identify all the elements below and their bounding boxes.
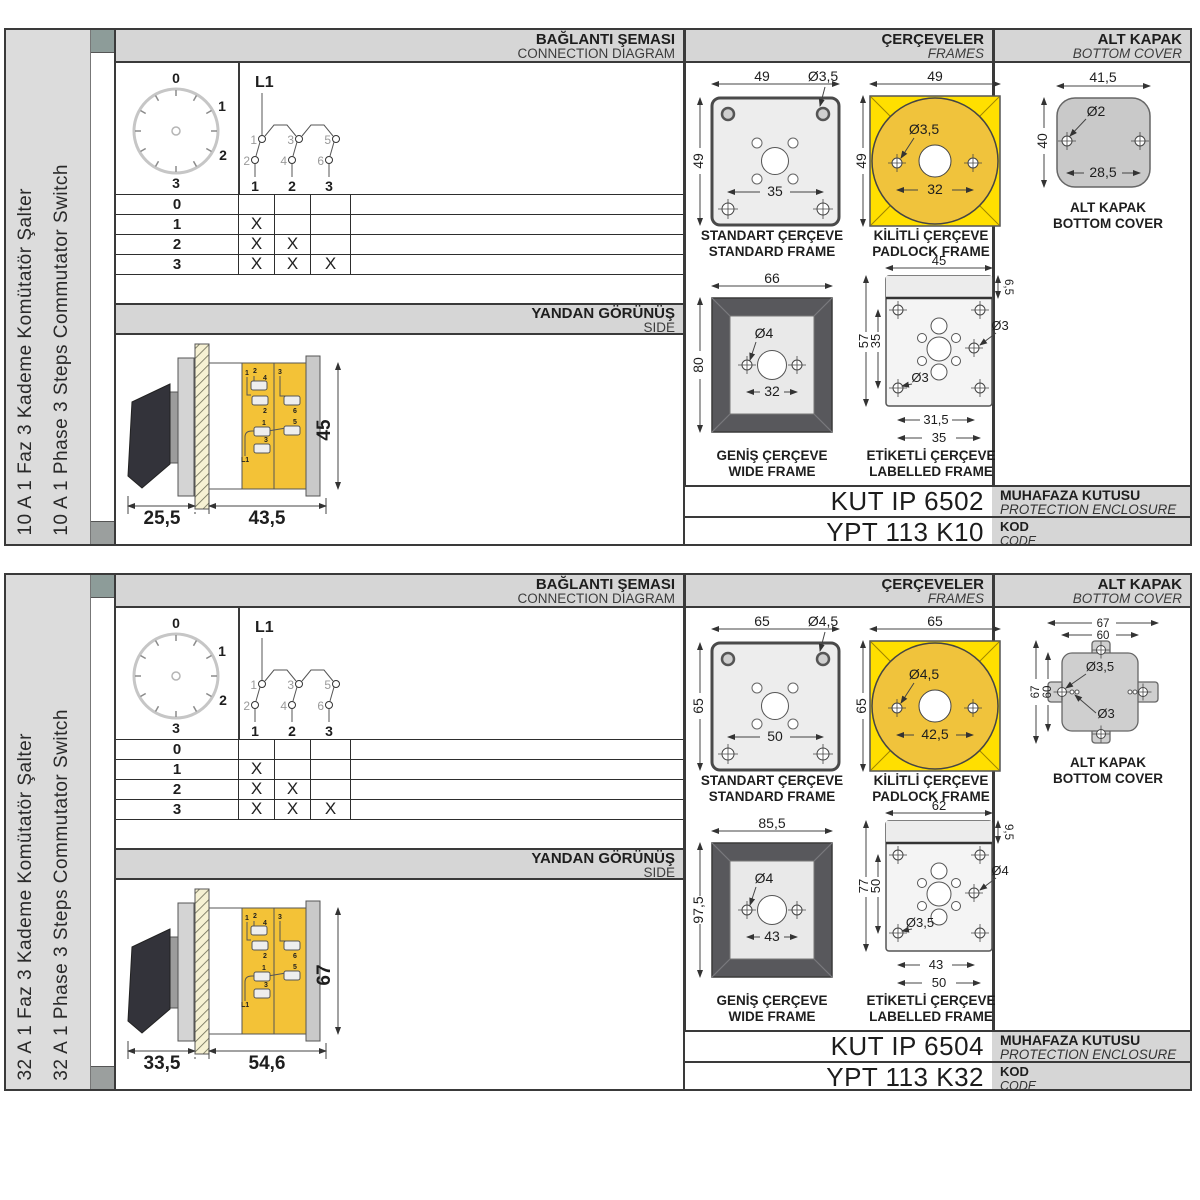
svg-text:1: 1	[262, 965, 266, 972]
svg-text:5: 5	[293, 964, 297, 971]
header-frames: ÇERÇEVELER FRAMES	[686, 575, 992, 608]
svg-text:L1: L1	[241, 1002, 249, 1009]
svg-text:4: 4	[263, 920, 267, 927]
svg-text:2: 2	[243, 699, 250, 713]
dim-height-outer: 67	[1030, 686, 1042, 699]
svg-text:2: 2	[253, 913, 257, 920]
enclosure-code-value: KUT IP 6502	[685, 487, 992, 516]
dim-hole: Ø2	[1087, 103, 1106, 119]
svg-text:42,5: 42,5	[921, 726, 948, 742]
contact-cell: X	[238, 780, 274, 799]
switch-handle	[128, 929, 170, 1033]
dim-b: 35	[932, 430, 946, 445]
dim-hole: Ø3,5	[909, 121, 940, 137]
contact-cell	[238, 740, 274, 759]
header-connection: BAĞLANTI ŞEMASI CONNECTION DIAGRAM	[116, 575, 683, 608]
code-label: KODCODE	[992, 518, 1190, 544]
product-title-english: 32 A 1 Phase 3 Steps Commutator Switch	[51, 709, 73, 1081]
dim-height: 80	[690, 357, 706, 373]
dim-inner: 32	[764, 383, 780, 399]
standard-frame-caption: STANDART ÇERÇEVESTANDARD FRAME	[690, 228, 854, 260]
svg-text:1: 1	[262, 420, 266, 427]
contact-cell	[310, 235, 350, 254]
dim-depth-body: 43,5	[249, 508, 286, 529]
enclosure-row: KUT IP 6502 MUHAFAZA KUTUSUPROTECTION EN…	[685, 485, 1190, 518]
code-label: KODCODE	[992, 1063, 1190, 1089]
header-side-view: YANDAN GÖRÜNÜŞ SIDE	[116, 848, 683, 880]
switch-handle	[128, 384, 170, 488]
svg-text:33,5: 33,5	[144, 1053, 181, 1074]
strip-marker-bottom	[91, 1066, 114, 1089]
labelled-frame-caption: ETİKETLİ ÇERÇEVELABELLED FRAME	[852, 993, 1010, 1025]
product-title-turkish: 32 A 1 Faz 3 Kademe Komütatör Şalter	[15, 733, 37, 1081]
enclosure-code-value: KUT IP 6504	[685, 1032, 992, 1061]
contact-cell	[310, 760, 350, 779]
binding-strip	[91, 575, 116, 1089]
standard-frame-caption: STANDART ÇERÇEVESTANDARD FRAME	[690, 773, 854, 805]
bottom-cover-caption: ALT KAPAKBOTTOM COVER	[1026, 200, 1190, 232]
contact-cell	[274, 215, 310, 234]
svg-text:6: 6	[293, 408, 297, 415]
row-label: 2	[116, 235, 238, 254]
table-row: 3XXX	[116, 254, 683, 274]
dial-position-1: 1	[218, 98, 226, 114]
empty-cell	[350, 215, 683, 234]
circuit-schematic: L1 1 3 5 2 4 6 1 2 3	[243, 74, 339, 194]
svg-text:2: 2	[253, 368, 257, 375]
product-title-english: 10 A 1 Phase 3 Steps Commutator Switch	[51, 164, 73, 536]
padlock-frame-drawing: 49 49 Ø3,5 32	[854, 70, 1008, 228]
table-row: 3XXX	[116, 799, 683, 819]
empty-cell	[350, 780, 683, 799]
svg-text:97,5: 97,5	[690, 896, 706, 923]
svg-text:6: 6	[317, 699, 324, 713]
dim-hole-small: Ø3	[1097, 706, 1114, 721]
enclosure-row: KUT IP 6504 MUHAFAZA KUTUSUPROTECTION EN…	[685, 1030, 1190, 1063]
header-frames: ÇERÇEVELER FRAMES	[686, 30, 992, 63]
empty-cell	[350, 255, 683, 274]
table-row: 1X	[116, 759, 683, 779]
contact-cell: X	[274, 780, 310, 799]
connection-diagram-drawing: 0 1 2 3 L1 1 3 5 2 4 6 1 2 3	[116, 63, 683, 194]
row-label: 1	[116, 760, 238, 779]
strip-marker-top	[91, 575, 114, 598]
svg-text:Ø3,5: Ø3,5	[906, 915, 934, 930]
table-row: 1X	[116, 214, 683, 234]
svg-text:43: 43	[929, 957, 943, 972]
empty-cell	[350, 195, 683, 214]
product-panel-10a: 10 A 1 Faz 3 Kademe Komütatör Şalter 10 …	[4, 28, 1192, 546]
table-row: 2XX	[116, 779, 683, 799]
svg-text:4: 4	[280, 699, 287, 713]
binding-strip	[91, 30, 116, 544]
dim-height: 45	[314, 419, 335, 441]
svg-text:3: 3	[278, 369, 282, 376]
enclosure-label: MUHAFAZA KUTUSUPROTECTION ENCLOSURE	[992, 1032, 1190, 1061]
terminal-3: 3	[287, 133, 294, 147]
dim-height: 49	[853, 153, 869, 169]
svg-text:5: 5	[324, 678, 331, 692]
phase-label: L1	[255, 74, 274, 91]
labelled-frame-caption: ETİKETLİ ÇERÇEVELABELLED FRAME	[852, 448, 1010, 480]
contact-cell: X	[238, 215, 274, 234]
contact-cell: X	[238, 760, 274, 779]
bottom-cover-drawing: 41,5 Ø2 40 28,5	[1026, 68, 1190, 198]
side-view-drawing: 1 2 4 2 3 6 1 5 3 L1 45 25,5 43,5	[116, 338, 466, 526]
row-label: 3	[116, 800, 238, 819]
product-title-turkish: 10 A 1 Faz 3 Kademe Komütatör Şalter	[15, 188, 37, 536]
dim-height: 49	[690, 153, 706, 169]
contact-cell: X	[238, 255, 274, 274]
contact-cell	[310, 740, 350, 759]
dim-inner-height: 35	[868, 334, 883, 348]
svg-text:62: 62	[932, 798, 946, 813]
row-label: 0	[116, 740, 238, 759]
svg-text:3: 3	[325, 723, 333, 739]
svg-text:Ø4,5: Ø4,5	[808, 613, 839, 629]
terminal-6: 6	[317, 154, 324, 168]
header-frames-en: FRAMES	[686, 47, 984, 61]
contact-cell: X	[274, 255, 310, 274]
sidebar: 32 A 1 Faz 3 Kademe Komütatör Şalter 32 …	[6, 575, 91, 1089]
contact-cell: X	[310, 255, 350, 274]
row-label: 1	[116, 215, 238, 234]
empty-cell	[350, 800, 683, 819]
svg-text:65: 65	[853, 698, 869, 714]
switching-table: 0 1X 2XX 3XXX	[116, 194, 683, 275]
svg-text:54,6: 54,6	[249, 1053, 286, 1074]
dim-height: 40	[1034, 133, 1050, 149]
table-row: 0	[116, 739, 683, 759]
strip-marker-top	[91, 30, 114, 53]
table-row: 2XX	[116, 234, 683, 254]
contact-cell	[274, 195, 310, 214]
empty-cell	[350, 235, 683, 254]
contact-cell	[310, 215, 350, 234]
svg-text:2: 2	[263, 408, 267, 415]
dim-hole: Ø3,5	[808, 68, 839, 84]
svg-text:85,5: 85,5	[758, 815, 785, 831]
table-row: 0	[116, 194, 683, 214]
catalog-page: 10 A 1 Faz 3 Kademe Komütatör Şalter 10 …	[0, 0, 1200, 1200]
dim-width: 49	[754, 68, 770, 84]
contact-cell	[274, 760, 310, 779]
dim-inner: 35	[767, 183, 783, 199]
svg-text:1: 1	[250, 678, 257, 692]
svg-text:Ø4,5: Ø4,5	[909, 666, 940, 682]
switch-dial: 0 1 2 3	[134, 615, 227, 736]
contact-cell	[310, 195, 350, 214]
header-connection: BAĞLANTI ŞEMASI CONNECTION DIAGRAM	[116, 30, 683, 63]
svg-text:67: 67	[314, 964, 335, 985]
dial-position-0: 0	[172, 70, 180, 86]
contact-cell: X	[310, 800, 350, 819]
terminal-4: 4	[280, 154, 287, 168]
svg-text:6: 6	[293, 953, 297, 960]
header-side-tr: YANDAN GÖRÜNÜŞ	[116, 306, 675, 321]
code-row: YPT 113 K32 KODCODE	[685, 1063, 1190, 1089]
svg-text:4: 4	[263, 375, 267, 382]
row-label: 3	[116, 255, 238, 274]
header-cover-en: BOTTOM COVER	[995, 47, 1182, 61]
svg-text:2: 2	[263, 953, 267, 960]
row-label: 2	[116, 780, 238, 799]
svg-text:65: 65	[690, 698, 706, 714]
svg-text:43: 43	[764, 928, 780, 944]
row-label: 0	[116, 195, 238, 214]
dim-hole-side: Ø3	[991, 318, 1008, 333]
svg-text:1: 1	[245, 915, 249, 922]
switching-table: 0 1X 2XX 3XXX	[116, 739, 683, 820]
svg-text:1: 1	[245, 370, 249, 377]
labelled-frame-drawing: 62 9,5 77 50 Ø4 Ø3,5 43 50	[852, 805, 1010, 991]
svg-text:3: 3	[172, 720, 180, 736]
contact-cell: X	[274, 235, 310, 254]
dim-hole-tab: Ø3,5	[1086, 659, 1114, 674]
dim-depth-handle: 25,5	[144, 508, 181, 529]
svg-text:5: 5	[293, 419, 297, 426]
dim-spacing: 28,5	[1089, 164, 1116, 180]
svg-text:1: 1	[251, 723, 259, 739]
padlock-frame-drawing: 65 65 Ø4,5 42,5	[854, 615, 1008, 773]
svg-text:50: 50	[932, 975, 946, 990]
dim-hole-corner: Ø3	[911, 370, 928, 385]
switch-dial: 0 1 2 3	[134, 70, 227, 191]
code-row: YPT 113 K10 KODCODE	[685, 518, 1190, 544]
dim-width: 66	[764, 270, 780, 286]
dim-width-inner: 60	[1097, 630, 1110, 642]
pole-2: 2	[288, 178, 296, 194]
dial-position-3: 3	[172, 175, 180, 191]
dim-width: 41,5	[1089, 69, 1116, 85]
dial-position-2: 2	[219, 147, 227, 163]
svg-text:50: 50	[868, 879, 883, 893]
contact-cell: X	[238, 235, 274, 254]
svg-text:65: 65	[927, 613, 943, 629]
dim-inner: 32	[927, 181, 943, 197]
svg-text:2: 2	[288, 723, 296, 739]
wide-frame-drawing: 66 80 Ø4 32	[690, 276, 854, 446]
header-connection-tr: BAĞLANTI ŞEMASI	[116, 32, 675, 47]
section-divider	[683, 30, 686, 544]
dim-width-outer: 67	[1097, 618, 1110, 630]
svg-text:0: 0	[172, 615, 180, 631]
product-code-value: YPT 113 K32	[685, 1063, 992, 1089]
svg-text:3: 3	[264, 982, 268, 989]
empty-cell	[350, 760, 683, 779]
dim-strip: 6,5	[1002, 279, 1014, 295]
pole-1: 1	[251, 178, 259, 194]
strip-marker-bottom	[91, 521, 114, 544]
product-code-value: YPT 113 K10	[685, 518, 992, 544]
circuit-schematic: L1 1 3 5 2 4 6 1 2 3	[243, 619, 339, 739]
header-side-en: SIDE	[116, 321, 675, 335]
svg-text:3: 3	[287, 678, 294, 692]
dim-hole: Ø4	[755, 325, 774, 341]
enclosure-label: MUHAFAZA KUTUSUPROTECTION ENCLOSURE	[992, 487, 1190, 516]
svg-text:L1: L1	[255, 619, 274, 636]
connection-diagram-drawing: 0 1 2 3 L1 1 3 5 2 4 6 1 2 3	[116, 608, 683, 739]
wide-frame-drawing: 85,5 97,5 Ø4 43	[690, 821, 854, 991]
svg-text:2: 2	[219, 692, 227, 708]
header-frames-tr: ÇERÇEVELER	[686, 32, 984, 47]
pole-3: 3	[325, 178, 333, 194]
contact-cell: X	[238, 800, 274, 819]
contact-cell	[238, 195, 274, 214]
wide-frame-caption: GENİŞ ÇERÇEVEWIDE FRAME	[690, 448, 854, 480]
svg-text:3: 3	[278, 914, 282, 921]
bottom-cover-caption: ALT KAPAKBOTTOM COVER	[1026, 755, 1190, 787]
product-panel-32a: 32 A 1 Faz 3 Kademe Komütatör Şalter 32 …	[4, 573, 1192, 1091]
labelled-frame-drawing: 45 6,5 57 35 Ø3 Ø3 31,5 35	[852, 260, 1010, 446]
terminal-1: 1	[250, 133, 257, 147]
dim-width: 49	[927, 68, 943, 84]
dim-width: 45	[932, 253, 946, 268]
header-connection-en: CONNECTION DIAGRAM	[116, 47, 675, 61]
header-cover-tr: ALT KAPAK	[995, 32, 1182, 47]
contact-cell	[274, 740, 310, 759]
contact-cell: X	[274, 800, 310, 819]
dim-a: 31,5	[923, 412, 948, 427]
empty-cell	[350, 740, 683, 759]
header-side-view: YANDAN GÖRÜNÜŞ SIDE	[116, 303, 683, 335]
terminal-2: 2	[243, 154, 250, 168]
svg-text:Ø4: Ø4	[755, 870, 774, 886]
section-divider	[683, 575, 686, 1089]
svg-text:50: 50	[767, 728, 783, 744]
bottom-cover-drawing: 67 60 67 60 Ø3,5 Ø3	[1026, 613, 1190, 753]
svg-text:Ø4: Ø4	[991, 863, 1008, 878]
terminal-5: 5	[324, 133, 331, 147]
standard-frame-drawing: 65 Ø4,5 65 50	[690, 615, 854, 773]
svg-text:65: 65	[754, 613, 770, 629]
side-view-drawing: 1 2 4 2 3 6 1 5 3 L1 67 33,5 54,6	[116, 883, 466, 1071]
sidebar: 10 A 1 Faz 3 Kademe Komütatör Şalter 10 …	[6, 30, 91, 544]
svg-text:9,5: 9,5	[1002, 824, 1014, 840]
svg-text:L1: L1	[241, 457, 249, 464]
svg-text:1: 1	[218, 643, 226, 659]
header-bottom-cover: ALT KAPAK BOTTOM COVER	[995, 30, 1190, 63]
standard-frame-drawing: 49 Ø3,5 49 35	[690, 70, 854, 228]
header-bottom-cover: ALT KAPAK BOTTOM COVER	[995, 575, 1190, 608]
svg-text:3: 3	[264, 437, 268, 444]
wide-frame-caption: GENİŞ ÇERÇEVEWIDE FRAME	[690, 993, 854, 1025]
contact-cell	[310, 780, 350, 799]
dim-height-inner: 60	[1042, 686, 1054, 699]
